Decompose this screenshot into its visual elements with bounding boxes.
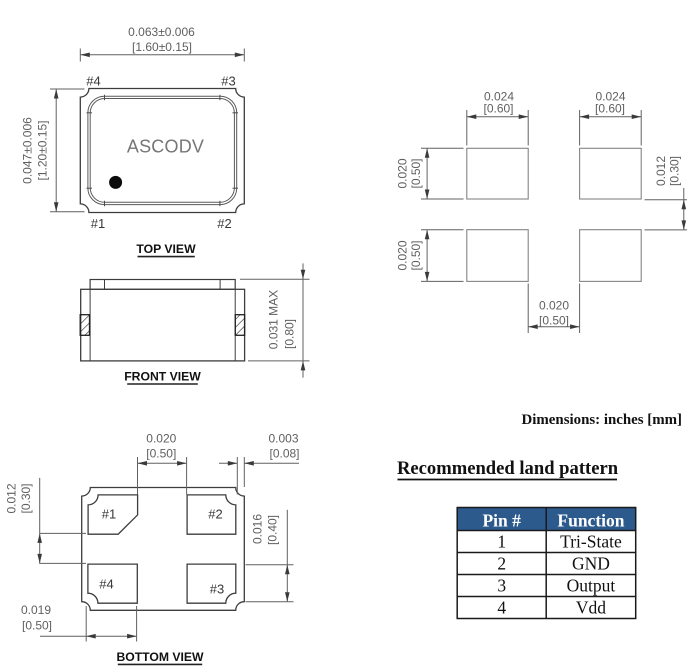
svg-text:[0.80]: [0.80] — [283, 319, 297, 349]
svg-text:[0.50]: [0.50] — [409, 240, 423, 270]
svg-text:BOTTOM VIEW: BOTTOM VIEW — [116, 650, 204, 664]
svg-text:Output: Output — [567, 576, 616, 596]
svg-text:Pin #: Pin # — [482, 511, 521, 531]
svg-text:#2: #2 — [217, 216, 231, 231]
svg-text:[0.50]: [0.50] — [409, 158, 423, 188]
svg-text:[0.40]: [0.40] — [266, 515, 280, 545]
svg-text:GND: GND — [572, 554, 610, 574]
svg-text:#4: #4 — [86, 74, 100, 89]
svg-text:0.003: 0.003 — [268, 432, 298, 446]
svg-text:4: 4 — [497, 598, 506, 618]
svg-text:Tri-State: Tri-State — [560, 532, 622, 552]
svg-text:Function: Function — [557, 511, 624, 531]
svg-text:[0.08]: [0.08] — [269, 447, 299, 461]
svg-text:[0.30]: [0.30] — [668, 156, 682, 186]
svg-text:#4: #4 — [99, 577, 113, 592]
svg-text:FRONT VIEW: FRONT VIEW — [124, 370, 201, 384]
svg-text:ASCODV: ASCODV — [127, 137, 204, 157]
svg-text:0.012: 0.012 — [5, 483, 19, 513]
svg-text:#3: #3 — [210, 582, 224, 597]
svg-text:Recommended land pattern: Recommended land pattern — [397, 458, 619, 479]
svg-text:[0.50]: [0.50] — [22, 619, 52, 633]
svg-text:0.012: 0.012 — [654, 156, 668, 186]
svg-text:0.031 MAX: 0.031 MAX — [267, 290, 281, 349]
svg-text:3: 3 — [497, 576, 506, 596]
svg-text:TOP VIEW: TOP VIEW — [136, 242, 196, 256]
svg-text:#1: #1 — [102, 507, 116, 522]
svg-text:Vdd: Vdd — [576, 598, 606, 618]
svg-text:[0.60]: [0.60] — [483, 102, 513, 116]
svg-text:[1.20±0.15]: [1.20±0.15] — [36, 121, 50, 181]
svg-text:0.020: 0.020 — [396, 158, 410, 188]
svg-text:0.063±0.006: 0.063±0.006 — [128, 25, 195, 39]
svg-text:0.019: 0.019 — [21, 603, 51, 617]
svg-text:0.016: 0.016 — [251, 514, 265, 544]
svg-text:#3: #3 — [221, 74, 235, 89]
svg-text:[0.60]: [0.60] — [595, 102, 625, 116]
svg-text:#1: #1 — [91, 216, 105, 231]
svg-text:1: 1 — [497, 532, 506, 552]
svg-text:[0.50]: [0.50] — [146, 447, 176, 461]
svg-text:[0.30]: [0.30] — [19, 483, 33, 513]
svg-text:[1.60±0.15]: [1.60±0.15] — [132, 40, 192, 54]
svg-text:Dimensions: inches [mm]: Dimensions: inches [mm] — [522, 412, 682, 428]
svg-text:[0.50]: [0.50] — [539, 314, 569, 328]
svg-text:#2: #2 — [208, 507, 222, 522]
svg-text:2: 2 — [497, 554, 506, 574]
svg-text:0.020: 0.020 — [396, 240, 410, 270]
svg-text:0.020: 0.020 — [146, 432, 176, 446]
svg-text:0.020: 0.020 — [539, 299, 569, 313]
svg-text:0.047±0.006: 0.047±0.006 — [21, 117, 35, 184]
